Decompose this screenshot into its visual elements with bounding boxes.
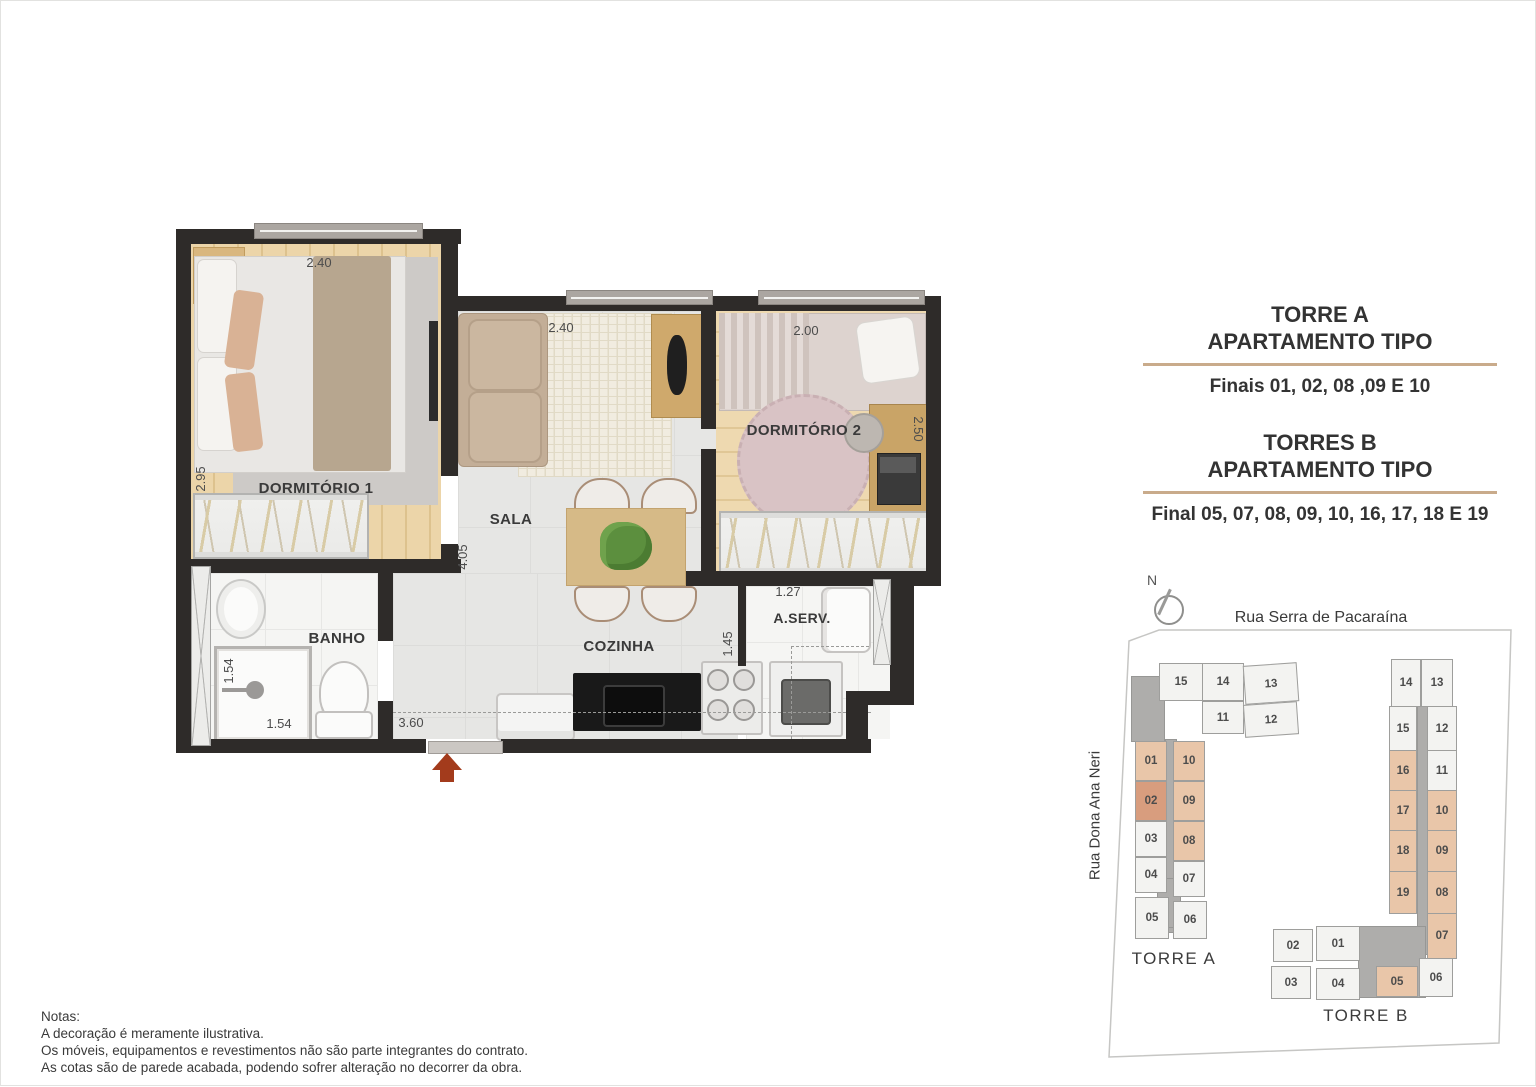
- wardrobe-dorm1: [193, 493, 369, 559]
- fridge: [496, 693, 575, 741]
- wall: [701, 449, 716, 571]
- sofa-cushion: [468, 391, 542, 463]
- compass-n-label: N: [1147, 572, 1157, 588]
- wall: [176, 229, 191, 573]
- wall: [701, 311, 716, 429]
- street-label-left: Rua Dona Ana Neri: [1087, 736, 1104, 896]
- tv-panel-dorm1: [429, 321, 438, 421]
- info-block-torre-b: TORRES B APARTAMENTO TIPO Final 05, 07, …: [1131, 429, 1509, 526]
- torre-b-subtitle: APARTAMENTO TIPO: [1131, 456, 1509, 483]
- notes-line: A decoração é meramente ilustrativa.: [41, 1025, 528, 1042]
- torre-b-caption: TORRE B: [1311, 1006, 1421, 1026]
- unit-a-15: 15: [1159, 663, 1203, 701]
- torre-a-caption: TORRE A: [1119, 949, 1229, 969]
- unit-b-12: 12: [1427, 706, 1457, 751]
- floor-plan: DORMITÓRIO 1 SALA DORMITÓRIO 2 BANHO COZ…: [1, 1, 961, 821]
- unit-b-08: 08: [1427, 871, 1457, 914]
- wall: [176, 559, 461, 573]
- bed-pillow: [855, 315, 921, 384]
- unit-b-02: 02: [1273, 929, 1313, 962]
- dim-dorm1-width: 2.40: [294, 255, 344, 271]
- unit-b-15: 15: [1389, 706, 1417, 751]
- divider: [1143, 491, 1497, 494]
- dim-sala-depth: 4.05: [455, 532, 471, 582]
- wall: [176, 739, 426, 753]
- torre-b-title: TORRES B: [1131, 429, 1509, 456]
- unit-a-12: 12: [1243, 701, 1299, 738]
- unit-b-11: 11: [1427, 750, 1457, 791]
- dashed-line-aserv: [791, 646, 869, 647]
- entrance-arrow-stem: [440, 769, 454, 782]
- unit-a-03: 03: [1135, 821, 1167, 857]
- unit-a-01: 01: [1135, 741, 1167, 781]
- dim-shower-depth: 1.54: [221, 646, 237, 696]
- dim-kitchen-width: 3.60: [386, 715, 436, 731]
- unit-a-09: 09: [1173, 781, 1205, 821]
- unit-b-05: 05: [1376, 966, 1418, 997]
- toilet-tank: [315, 711, 373, 739]
- wall: [926, 311, 941, 586]
- unit-a-11: 11: [1202, 701, 1244, 734]
- entrance-arrow-head: [432, 753, 462, 770]
- info-block-torre-a: TORRE A APARTAMENTO TIPO Finais 01, 02, …: [1131, 301, 1509, 398]
- notes-line: Os móveis, equipamentos e revestimentos …: [41, 1042, 528, 1059]
- unit-a-13: 13: [1243, 662, 1300, 705]
- unit-b-16: 16: [1389, 750, 1417, 791]
- street-label-top: Rua Serra de Pacaraína: [1201, 609, 1441, 627]
- stove-burner: [733, 669, 755, 691]
- wall: [890, 573, 914, 695]
- duct-shaft: [873, 579, 891, 665]
- rug-dorm2: [737, 394, 871, 528]
- unit-b-18: 18: [1389, 830, 1417, 872]
- torre-a-title: TORRE A: [1131, 301, 1509, 328]
- unit-b-13: 13: [1421, 659, 1453, 707]
- unit-b-10: 10: [1427, 790, 1457, 831]
- stove-burner: [707, 669, 729, 691]
- dim-dorm1-depth: 2.95: [193, 454, 209, 504]
- dim-dorm2-width: 2.00: [781, 323, 831, 339]
- unit-a-05: 05: [1135, 897, 1169, 939]
- torre-b-finals: Final 05, 07, 08, 09, 10, 16, 17, 18 E 1…: [1131, 504, 1509, 526]
- plant: [600, 522, 652, 570]
- page-frame: DORMITÓRIO 1 SALA DORMITÓRIO 2 BANHO COZ…: [0, 0, 1536, 1086]
- wall: [738, 581, 746, 666]
- unit-a-02: 02: [1135, 781, 1167, 821]
- dashed-line-h: [393, 712, 871, 713]
- sink: [216, 579, 266, 639]
- unit-a-14: 14: [1202, 663, 1244, 701]
- room-label-banho: BANHO: [287, 630, 387, 647]
- washer-door: [781, 679, 831, 725]
- room-label-dorm2: DORMITÓRIO 2: [704, 422, 904, 439]
- unit-a-10: 10: [1173, 741, 1205, 781]
- kitchen-sink: [603, 685, 665, 727]
- wall: [176, 573, 191, 753]
- bed-blanket: [313, 256, 391, 471]
- dim-shower-width: 1.54: [254, 716, 304, 732]
- dim-dorm2-depth: 2.50: [910, 404, 926, 454]
- room-label-dorm1: DORMITÓRIO 1: [216, 480, 416, 497]
- dim-sala-width: 2.40: [536, 320, 586, 336]
- unit-a-04: 04: [1135, 857, 1167, 893]
- unit-b-06: 06: [1419, 958, 1453, 997]
- unit-b-19: 19: [1389, 871, 1417, 914]
- window-dorm2: [758, 290, 925, 305]
- room-label-cozinha: COZINHA: [559, 638, 679, 655]
- dashed-line-aserv-v: [791, 646, 792, 739]
- stove-burner: [733, 699, 755, 721]
- wall: [501, 739, 871, 753]
- room-label-sala: SALA: [461, 511, 561, 528]
- wall: [441, 244, 458, 476]
- wardrobe-dorm2: [719, 511, 930, 575]
- unit-b-04: 04: [1316, 968, 1360, 1000]
- stove-burner: [707, 699, 729, 721]
- notes-title: Notas:: [41, 1008, 528, 1025]
- unit-b-07: 07: [1427, 913, 1457, 959]
- unit-b-17: 17: [1389, 790, 1417, 831]
- laptop-keyboard: [880, 457, 916, 473]
- dim-kitchen-depth: 1.45: [720, 619, 736, 669]
- unit-a-07: 07: [1173, 861, 1205, 897]
- tv: [667, 335, 687, 395]
- torre-a-subtitle: APARTAMENTO TIPO: [1131, 328, 1509, 355]
- unit-b-14: 14: [1391, 659, 1421, 707]
- unit-a-08: 08: [1173, 821, 1205, 861]
- site-plan: N Rua Serra de Pacaraína Rua Dona Ana Ne…: [1081, 556, 1536, 1087]
- notes-line: As cotas são de parede acabada, podendo …: [41, 1059, 528, 1076]
- window-dorm1: [254, 223, 423, 239]
- notes-block: Notas: A decoração é meramente ilustrati…: [41, 1008, 528, 1076]
- unit-b-09: 09: [1427, 830, 1457, 872]
- sofa-cushion: [468, 319, 542, 391]
- dim-aserv-width: 1.27: [763, 584, 813, 600]
- window-sala: [566, 290, 713, 305]
- unit-a-06: 06: [1173, 901, 1207, 939]
- unit-b-03: 03: [1271, 966, 1311, 999]
- unit-b-01: 01: [1316, 926, 1360, 961]
- room-label-aserv: A.SERV.: [752, 610, 852, 626]
- wall: [846, 691, 868, 753]
- divider: [1143, 363, 1497, 366]
- duct-shaft: [191, 566, 211, 746]
- torre-a-finals: Finais 01, 02, 08 ,09 E 10: [1131, 376, 1509, 398]
